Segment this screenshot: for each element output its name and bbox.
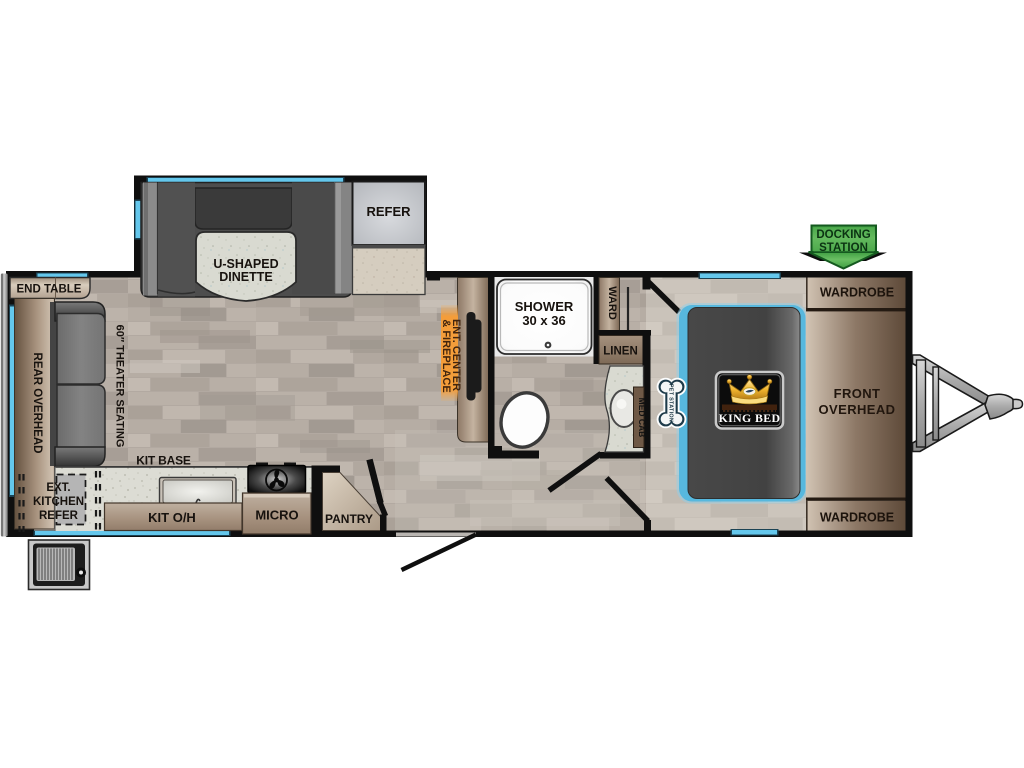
svg-text:REFER: REFER	[39, 510, 79, 522]
svg-text:MED CAB: MED CAB	[637, 398, 647, 438]
svg-text:30 x 36: 30 x 36	[522, 313, 565, 328]
svg-text:U-SHAPED: U-SHAPED	[213, 257, 278, 271]
svg-text:DINETTE: DINETTE	[219, 270, 272, 284]
svg-text:PANTRY: PANTRY	[325, 512, 373, 526]
svg-text:FRONT: FRONT	[834, 386, 881, 401]
svg-text:PET STATION: PET STATION	[667, 384, 673, 422]
svg-text:SHOWER: SHOWER	[515, 299, 574, 314]
svg-text:KIT BASE: KIT BASE	[136, 454, 191, 468]
svg-text:& FIREPLACE: & FIREPLACE	[440, 319, 452, 392]
svg-text:WARD: WARD	[606, 286, 618, 320]
svg-text:REAR OVERHEAD: REAR OVERHEAD	[31, 353, 43, 454]
svg-text:WARDROBE: WARDROBE	[820, 511, 894, 525]
svg-text:KIT O/H: KIT O/H	[148, 510, 196, 525]
svg-text:WARDROBE: WARDROBE	[820, 286, 894, 300]
svg-text:REFER: REFER	[366, 204, 411, 219]
svg-text:60″ THEATER SEATING: 60″ THEATER SEATING	[114, 325, 126, 448]
svg-text:STATION: STATION	[819, 242, 868, 254]
svg-text:OVERHEAD: OVERHEAD	[819, 402, 896, 417]
svg-text:KING BED: KING BED	[719, 411, 781, 425]
svg-text:LINEN: LINEN	[603, 346, 638, 358]
svg-text:END TABLE: END TABLE	[17, 284, 82, 296]
svg-text:KITCHEN: KITCHEN	[33, 496, 84, 508]
svg-text:MICRO: MICRO	[255, 508, 298, 523]
svg-text:DOCKING: DOCKING	[816, 229, 870, 241]
svg-text:EXT.: EXT.	[46, 482, 70, 494]
